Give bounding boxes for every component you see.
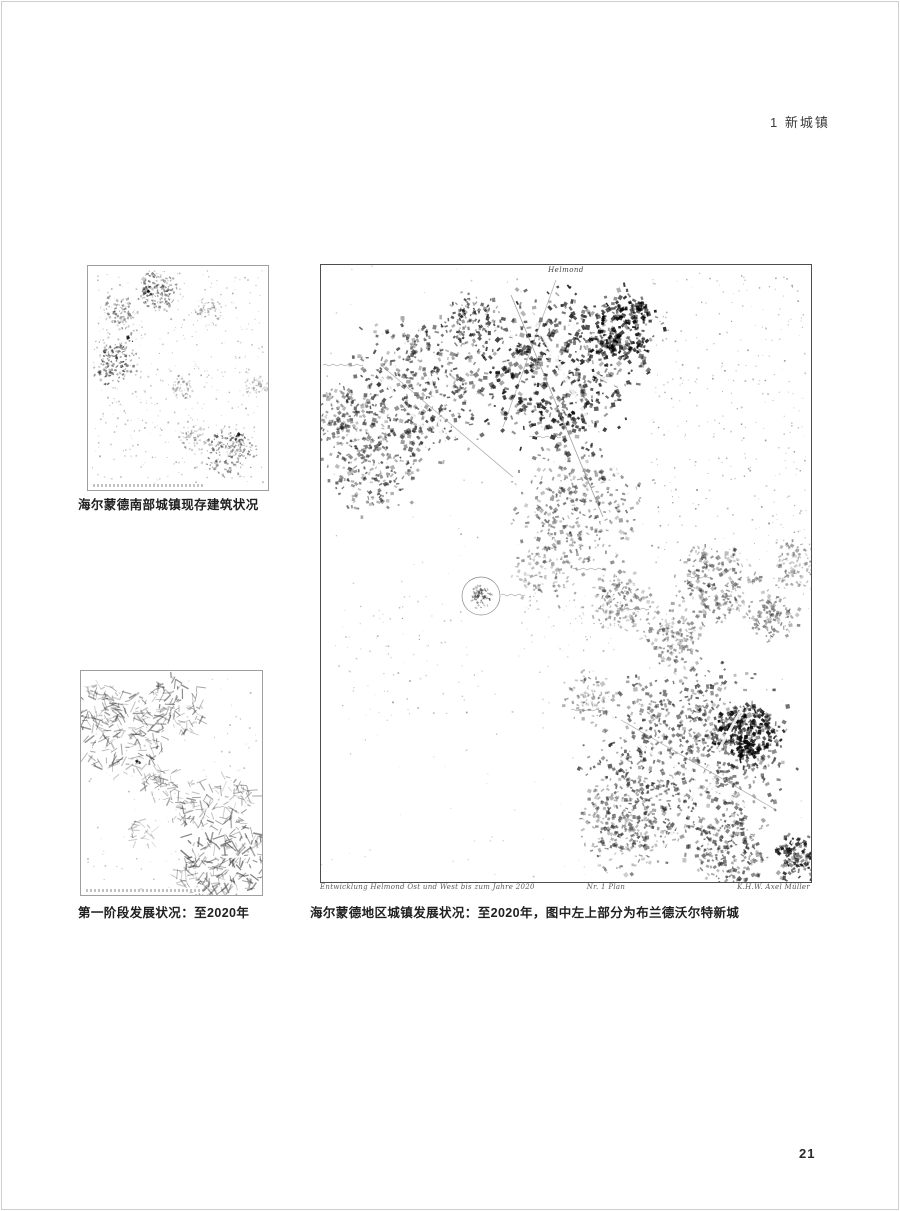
- map-annotation-signature: K.H.W. Axel Müller: [737, 883, 810, 891]
- map-microtext-strip: [93, 484, 203, 487]
- figure-phase1-map: [80, 670, 263, 896]
- map-microtext-strip: [86, 889, 206, 892]
- regional-development-map-canvas: [321, 265, 811, 882]
- chapter-header: 1 新城镇: [770, 112, 830, 131]
- page-number: 21: [799, 1146, 815, 1161]
- existing-conditions-map-canvas: [88, 266, 268, 490]
- scanned-page: 1 新城镇 海尔蒙德南部城镇现存建筑状况 第一阶段发展状况：至2020年 Hel…: [1, 1, 899, 1210]
- map-annotation-title: Entwicklung Helmond Ost und West bis zum…: [320, 883, 535, 891]
- figure-regional-development-map: Helmond: [320, 264, 812, 883]
- phase1-map-canvas: [81, 671, 262, 895]
- map-title-handwritten: Helmond: [321, 266, 811, 274]
- map-annotation-plan-number: Nr. 1 Plan: [587, 883, 625, 891]
- caption-phase1: 第一阶段发展状况：至2020年: [78, 902, 249, 921]
- caption-existing-conditions: 海尔蒙德南部城镇现存建筑状况: [78, 494, 259, 513]
- figure-existing-conditions-map: [87, 265, 269, 491]
- caption-regional-development: 海尔蒙德地区城镇发展状况：至2020年，图中左上部分为布兰德沃尔特新城: [310, 902, 739, 921]
- map-annotation-row: Entwicklung Helmond Ost und West bis zum…: [320, 883, 810, 897]
